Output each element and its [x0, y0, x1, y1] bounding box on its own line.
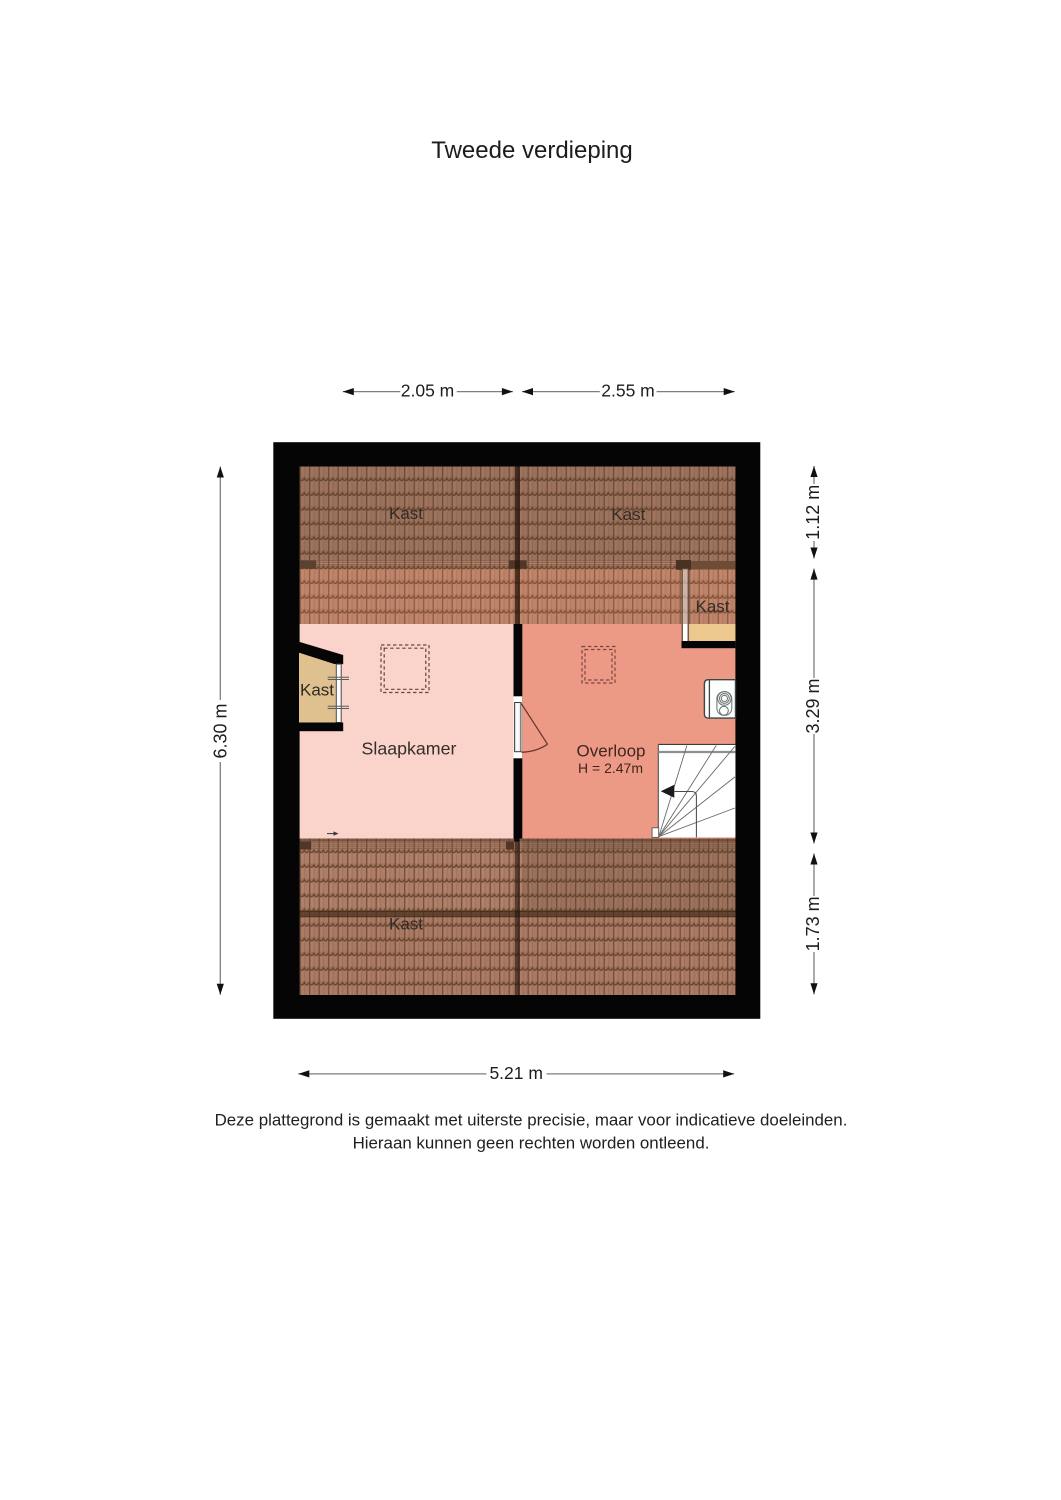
- svg-text:Slaapkamer: Slaapkamer: [362, 739, 457, 759]
- svg-text:Hieraan kunnen geen rechten wo: Hieraan kunnen geen rechten worden ontle…: [353, 1134, 710, 1153]
- svg-text:1.73 m: 1.73 m: [803, 896, 823, 951]
- svg-text:3.29 m: 3.29 m: [803, 678, 823, 733]
- svg-text:Kast: Kast: [695, 597, 729, 616]
- svg-text:Kast: Kast: [300, 681, 334, 700]
- svg-text:2.05 m: 2.05 m: [401, 381, 455, 401]
- svg-text:Kast: Kast: [389, 504, 423, 523]
- svg-text:Tweede verdieping: Tweede verdieping: [431, 137, 632, 164]
- svg-text:6.30 m: 6.30 m: [210, 703, 230, 758]
- svg-text:Kast: Kast: [611, 505, 645, 524]
- svg-text:1.12 m: 1.12 m: [803, 485, 823, 540]
- svg-text:Kast: Kast: [389, 915, 423, 934]
- svg-text:Deze plattegrond is gemaakt me: Deze plattegrond is gemaakt met uiterste…: [215, 1111, 848, 1130]
- svg-text:2.55 m: 2.55 m: [601, 381, 655, 401]
- svg-text:Overloop: Overloop: [577, 742, 646, 761]
- svg-text:H = 2.47m: H = 2.47m: [578, 760, 643, 776]
- svg-text:5.21 m: 5.21 m: [489, 1063, 543, 1083]
